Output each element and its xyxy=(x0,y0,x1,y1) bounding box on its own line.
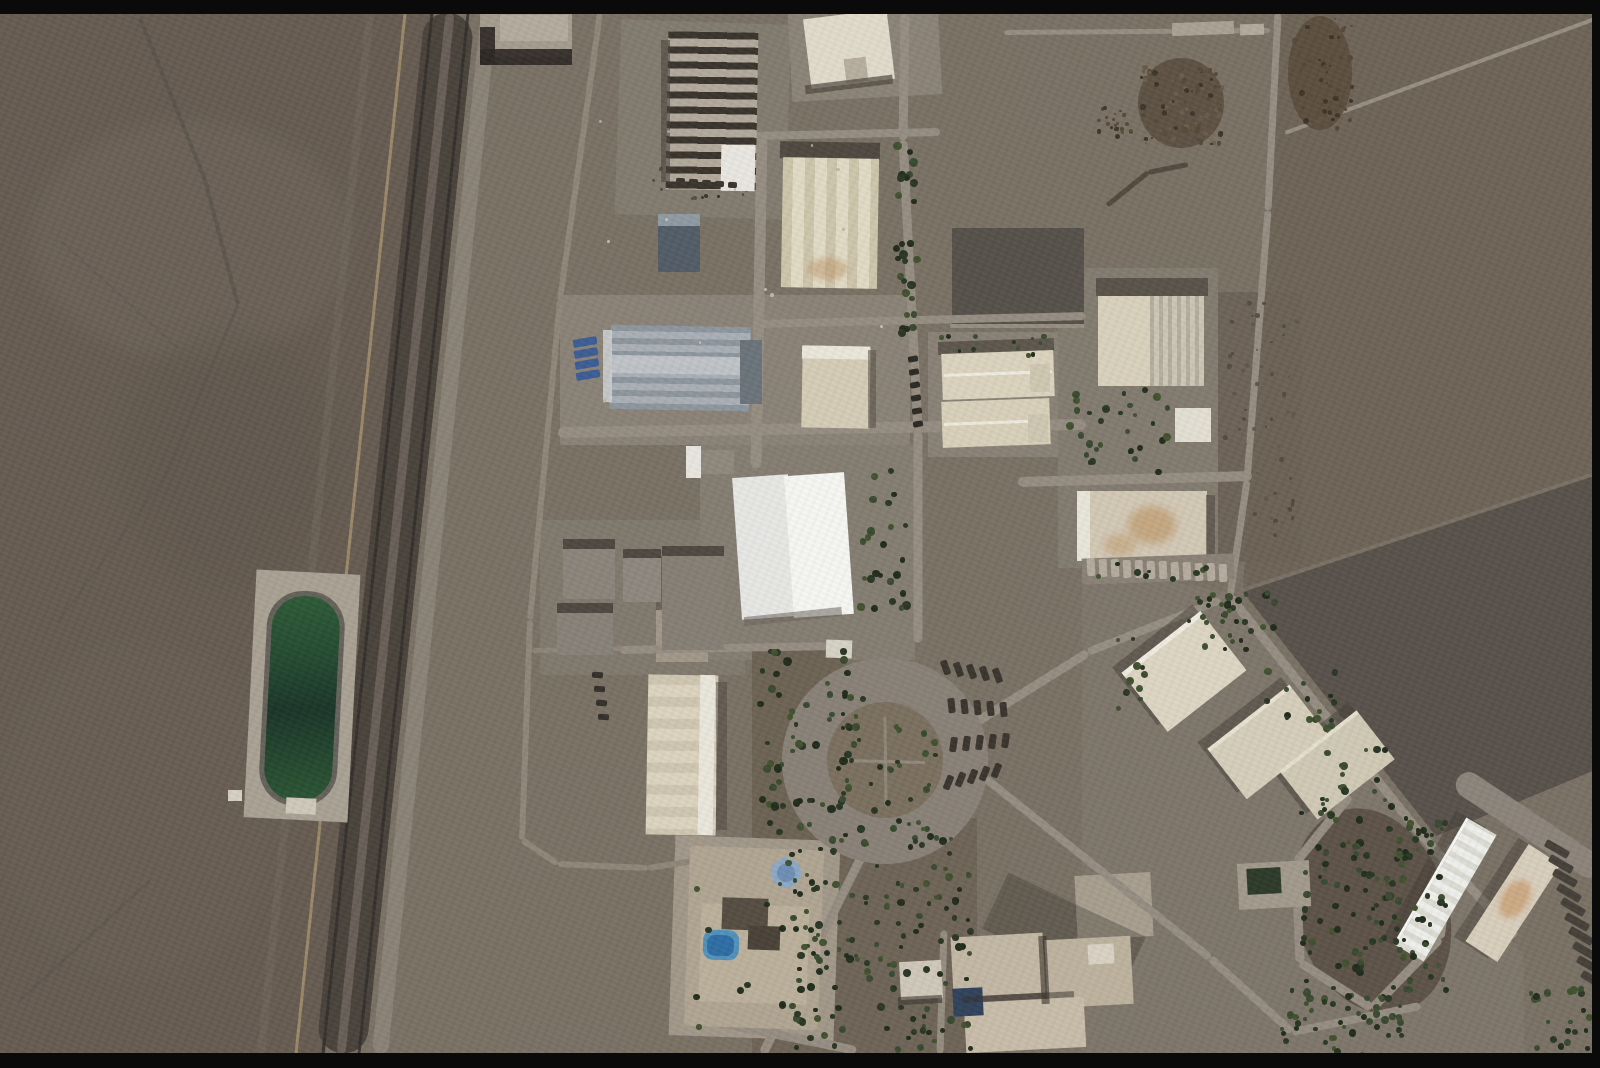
letterbox-top xyxy=(0,0,1600,14)
satellite-image xyxy=(0,0,1600,1068)
letterbox-bottom xyxy=(0,1053,1600,1068)
letterbox-right xyxy=(1592,0,1600,1068)
grain-texture xyxy=(0,0,1600,1068)
